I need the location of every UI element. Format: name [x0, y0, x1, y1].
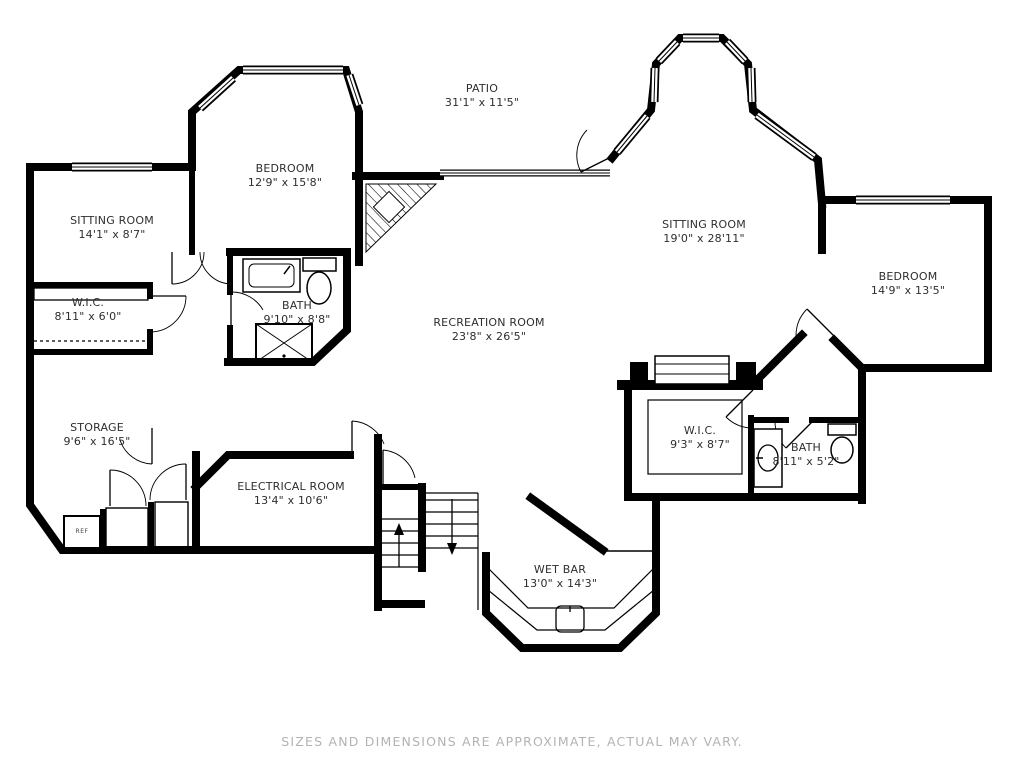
room-label-sitting-right: SITTING ROOM19'0" x 28'11" — [662, 218, 746, 246]
shower-icon — [256, 324, 312, 362]
room-label-bath-left: BATH9'10" x 8'8" — [263, 299, 330, 327]
room-label-patio: PATIO31'1" x 11'5" — [445, 82, 519, 110]
stair-arrow-down-icon — [447, 499, 457, 555]
toilet-icon — [303, 258, 336, 304]
sink-icon — [243, 259, 300, 292]
room-label-bedroom-upper: BEDROOM12'9" x 15'8" — [248, 162, 322, 190]
room-label-recreation: RECREATION ROOM23'8" x 26'5" — [433, 316, 544, 344]
winder-stairs — [366, 184, 436, 252]
room-label-sitting-left: SITTING ROOM14'1" x 8'7" — [70, 214, 154, 242]
bar-sink-icon — [556, 606, 584, 632]
room-label-bath-right: BATH8'11" x 5'2" — [772, 441, 839, 469]
disclaimer-text: SIZES AND DIMENSIONS ARE APPROXIMATE, AC… — [281, 734, 742, 749]
room-label-wic-right: W.I.C.9'3" x 8'7" — [670, 424, 730, 452]
stair-arrow-up-icon — [394, 523, 404, 567]
closet-shelving — [34, 288, 742, 548]
room-label-electrical: ELECTRICAL ROOM13'4" x 10'6" — [237, 480, 345, 508]
room-label-storage: STORAGE9'6" x 16'5" — [63, 421, 130, 449]
ref-label: REF — [76, 528, 89, 535]
floor-plan-drawing — [0, 0, 1024, 768]
room-label-wic-left: W.I.C.8'11" x 6'0" — [54, 296, 121, 324]
room-label-bedroom-right: BEDROOM14'9" x 13'5" — [871, 270, 945, 298]
room-label-wet-bar: WET BAR13'0" x 14'3" — [523, 563, 597, 591]
floor-plan: PATIO31'1" x 11'5" BEDROOM12'9" x 15'8" … — [0, 0, 1024, 768]
